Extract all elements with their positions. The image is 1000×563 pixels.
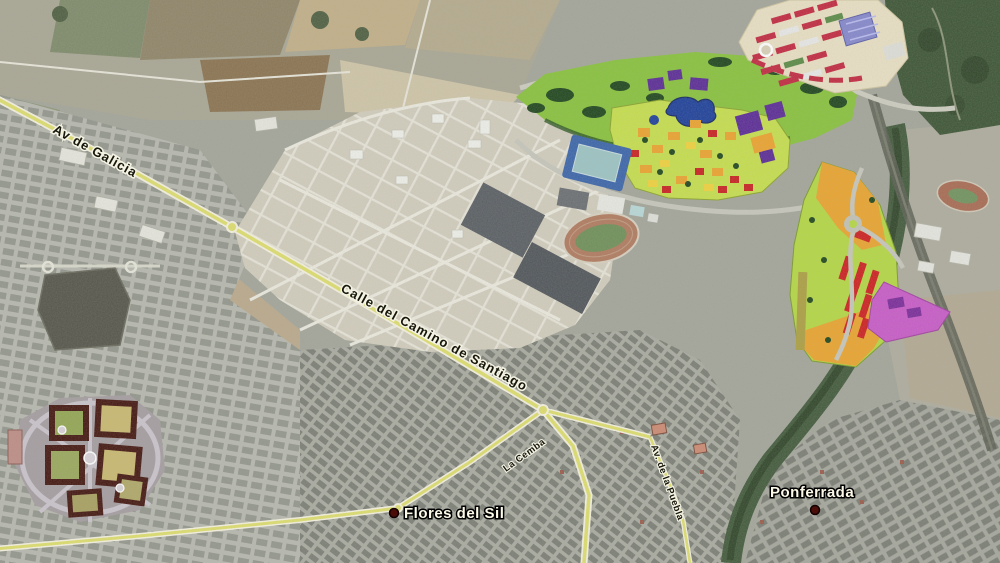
place-label-flores-del-sil[interactable]: Flores del Sil [404, 505, 504, 522]
place-marker-flores-del-sil[interactable] [390, 509, 399, 518]
map-viewport[interactable]: Av de Galicia Calle del Camino de Santia… [0, 0, 1000, 563]
place-label-ponferrada[interactable]: Ponferrada [770, 484, 854, 501]
place-marker-ponferrada[interactable] [811, 506, 820, 515]
photo-grain [0, 0, 1000, 563]
